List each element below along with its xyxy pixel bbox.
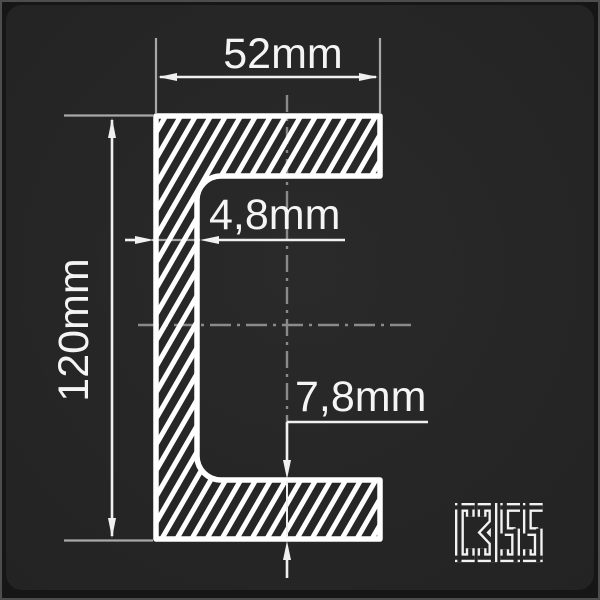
arrow-flange-up	[283, 541, 291, 560]
dim-leader-flange	[287, 422, 428, 462]
arrow-width-right	[359, 73, 378, 81]
flange-thickness-label: 7,8mm	[295, 373, 426, 421]
screenshot-frame: 52mm 120mm 4,8mm 7,8mm C355	[0, 0, 600, 600]
height-dimension-label: 120mm	[50, 258, 98, 401]
arrow-height-top	[108, 118, 116, 138]
arrow-width-left	[158, 73, 177, 81]
grade-logo: C355	[455, 503, 573, 571]
width-dimension-label: 52mm	[223, 30, 342, 78]
arrow-web-left	[135, 236, 154, 244]
channel-profile-drawing: 52mm 120mm 4,8mm 7,8mm C355	[0, 0, 600, 600]
arrow-height-bottom	[108, 518, 116, 538]
web-thickness-label: 4,8mm	[209, 191, 340, 239]
channel-profile-shape	[156, 116, 380, 539]
arrow-flange-down	[283, 460, 291, 479]
